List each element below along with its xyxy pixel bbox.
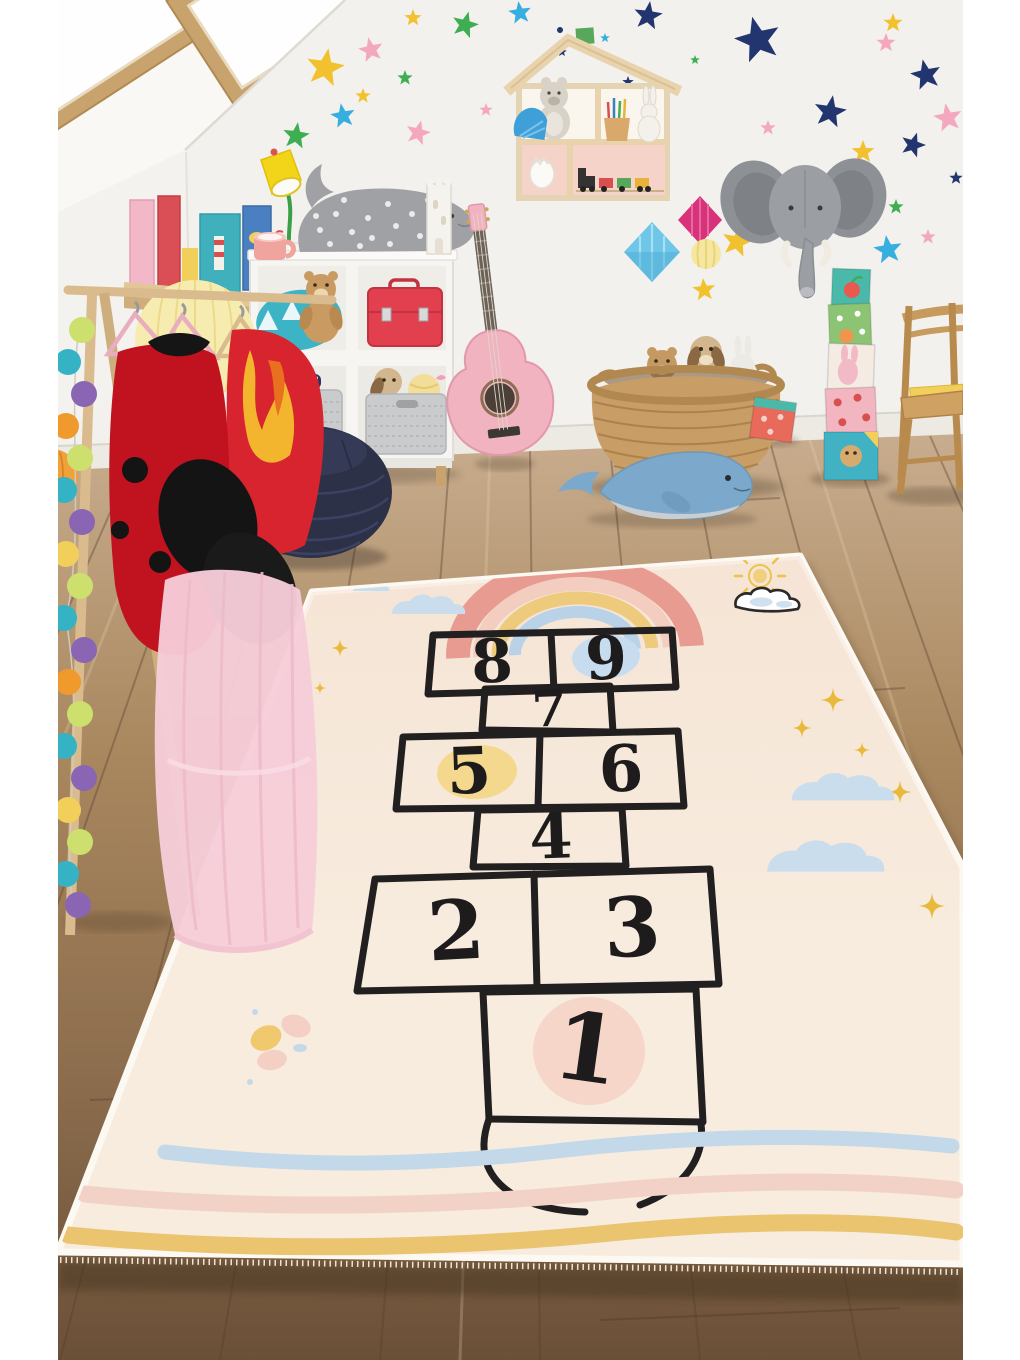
kids-room-photo: 8 9 7 5 6 4 2 3 1 <box>0 0 1020 1360</box>
rug-cell-7: 7 <box>531 678 568 738</box>
yellow-honeycomb-ball <box>691 239 721 269</box>
rug-cell-9: 9 <box>584 623 628 694</box>
rug-cell-2: 2 <box>425 882 487 981</box>
rug-cell-4: 4 <box>528 799 574 873</box>
red-suitcase <box>368 280 442 346</box>
book-red <box>158 196 180 286</box>
left-margin <box>0 0 58 1360</box>
photo-stage: 8 9 7 5 6 4 2 3 1 <box>0 0 1020 1360</box>
rug-cell-5: 5 <box>445 733 492 810</box>
right-margin <box>963 0 1020 1360</box>
pink-tutu <box>155 570 318 952</box>
rug-cell-3: 3 <box>601 879 663 978</box>
stacking-block-tower <box>824 268 878 480</box>
rug-cell-6: 6 <box>597 731 644 808</box>
toy-block <box>749 397 796 442</box>
white-castle-toy <box>427 179 451 254</box>
book-pink <box>130 200 154 286</box>
rug-cell-8: 8 <box>470 626 514 697</box>
